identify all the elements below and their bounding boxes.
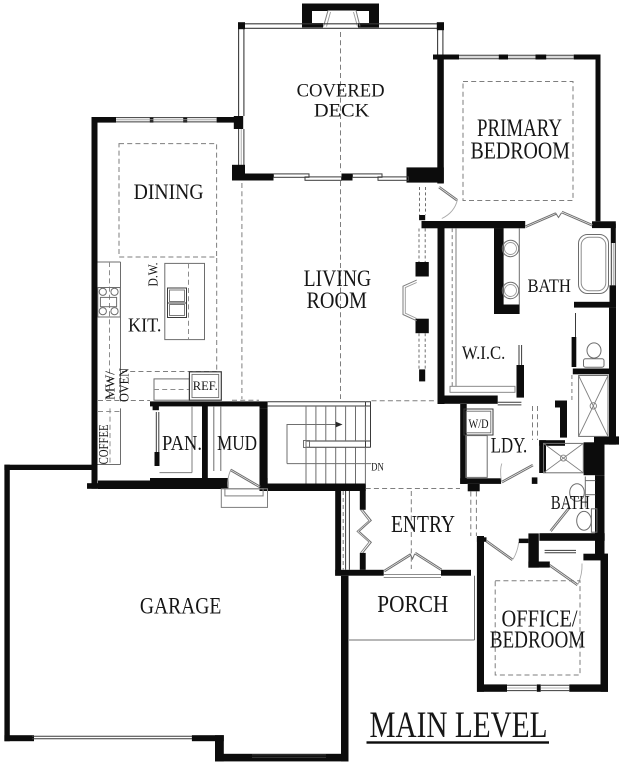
svg-text:DN: DN [371, 462, 384, 474]
svg-text:D.W.: D.W. [146, 263, 161, 287]
svg-text:MUD: MUD [217, 431, 257, 455]
svg-text:BATH: BATH [551, 492, 590, 514]
svg-text:W/D: W/D [469, 416, 489, 431]
svg-text:KIT.: KIT. [128, 314, 162, 336]
svg-text:ROOM: ROOM [306, 288, 367, 313]
svg-text:DINING: DINING [134, 179, 204, 204]
svg-text:ENTRY: ENTRY [391, 511, 455, 538]
svg-text:COFFEE: COFFEE [97, 424, 112, 464]
svg-text:REF.: REF. [193, 378, 218, 393]
svg-text:GARAGE: GARAGE [140, 594, 222, 619]
svg-text:MW/: MW/ [102, 371, 117, 400]
svg-text:MAIN LEVEL: MAIN LEVEL [370, 705, 548, 746]
svg-text:COVERED: COVERED [297, 80, 385, 101]
svg-text:OVEN: OVEN [116, 368, 131, 402]
svg-text:W.I.C.: W.I.C. [462, 343, 506, 364]
svg-text:BEDROOM: BEDROOM [490, 627, 586, 654]
svg-text:PAN.: PAN. [162, 431, 202, 455]
svg-text:BEDROOM: BEDROOM [470, 137, 570, 164]
svg-text:DECK: DECK [314, 101, 370, 122]
svg-text:LDY.: LDY. [491, 432, 528, 457]
svg-text:PORCH: PORCH [377, 591, 448, 618]
svg-text:BATH: BATH [527, 276, 571, 297]
